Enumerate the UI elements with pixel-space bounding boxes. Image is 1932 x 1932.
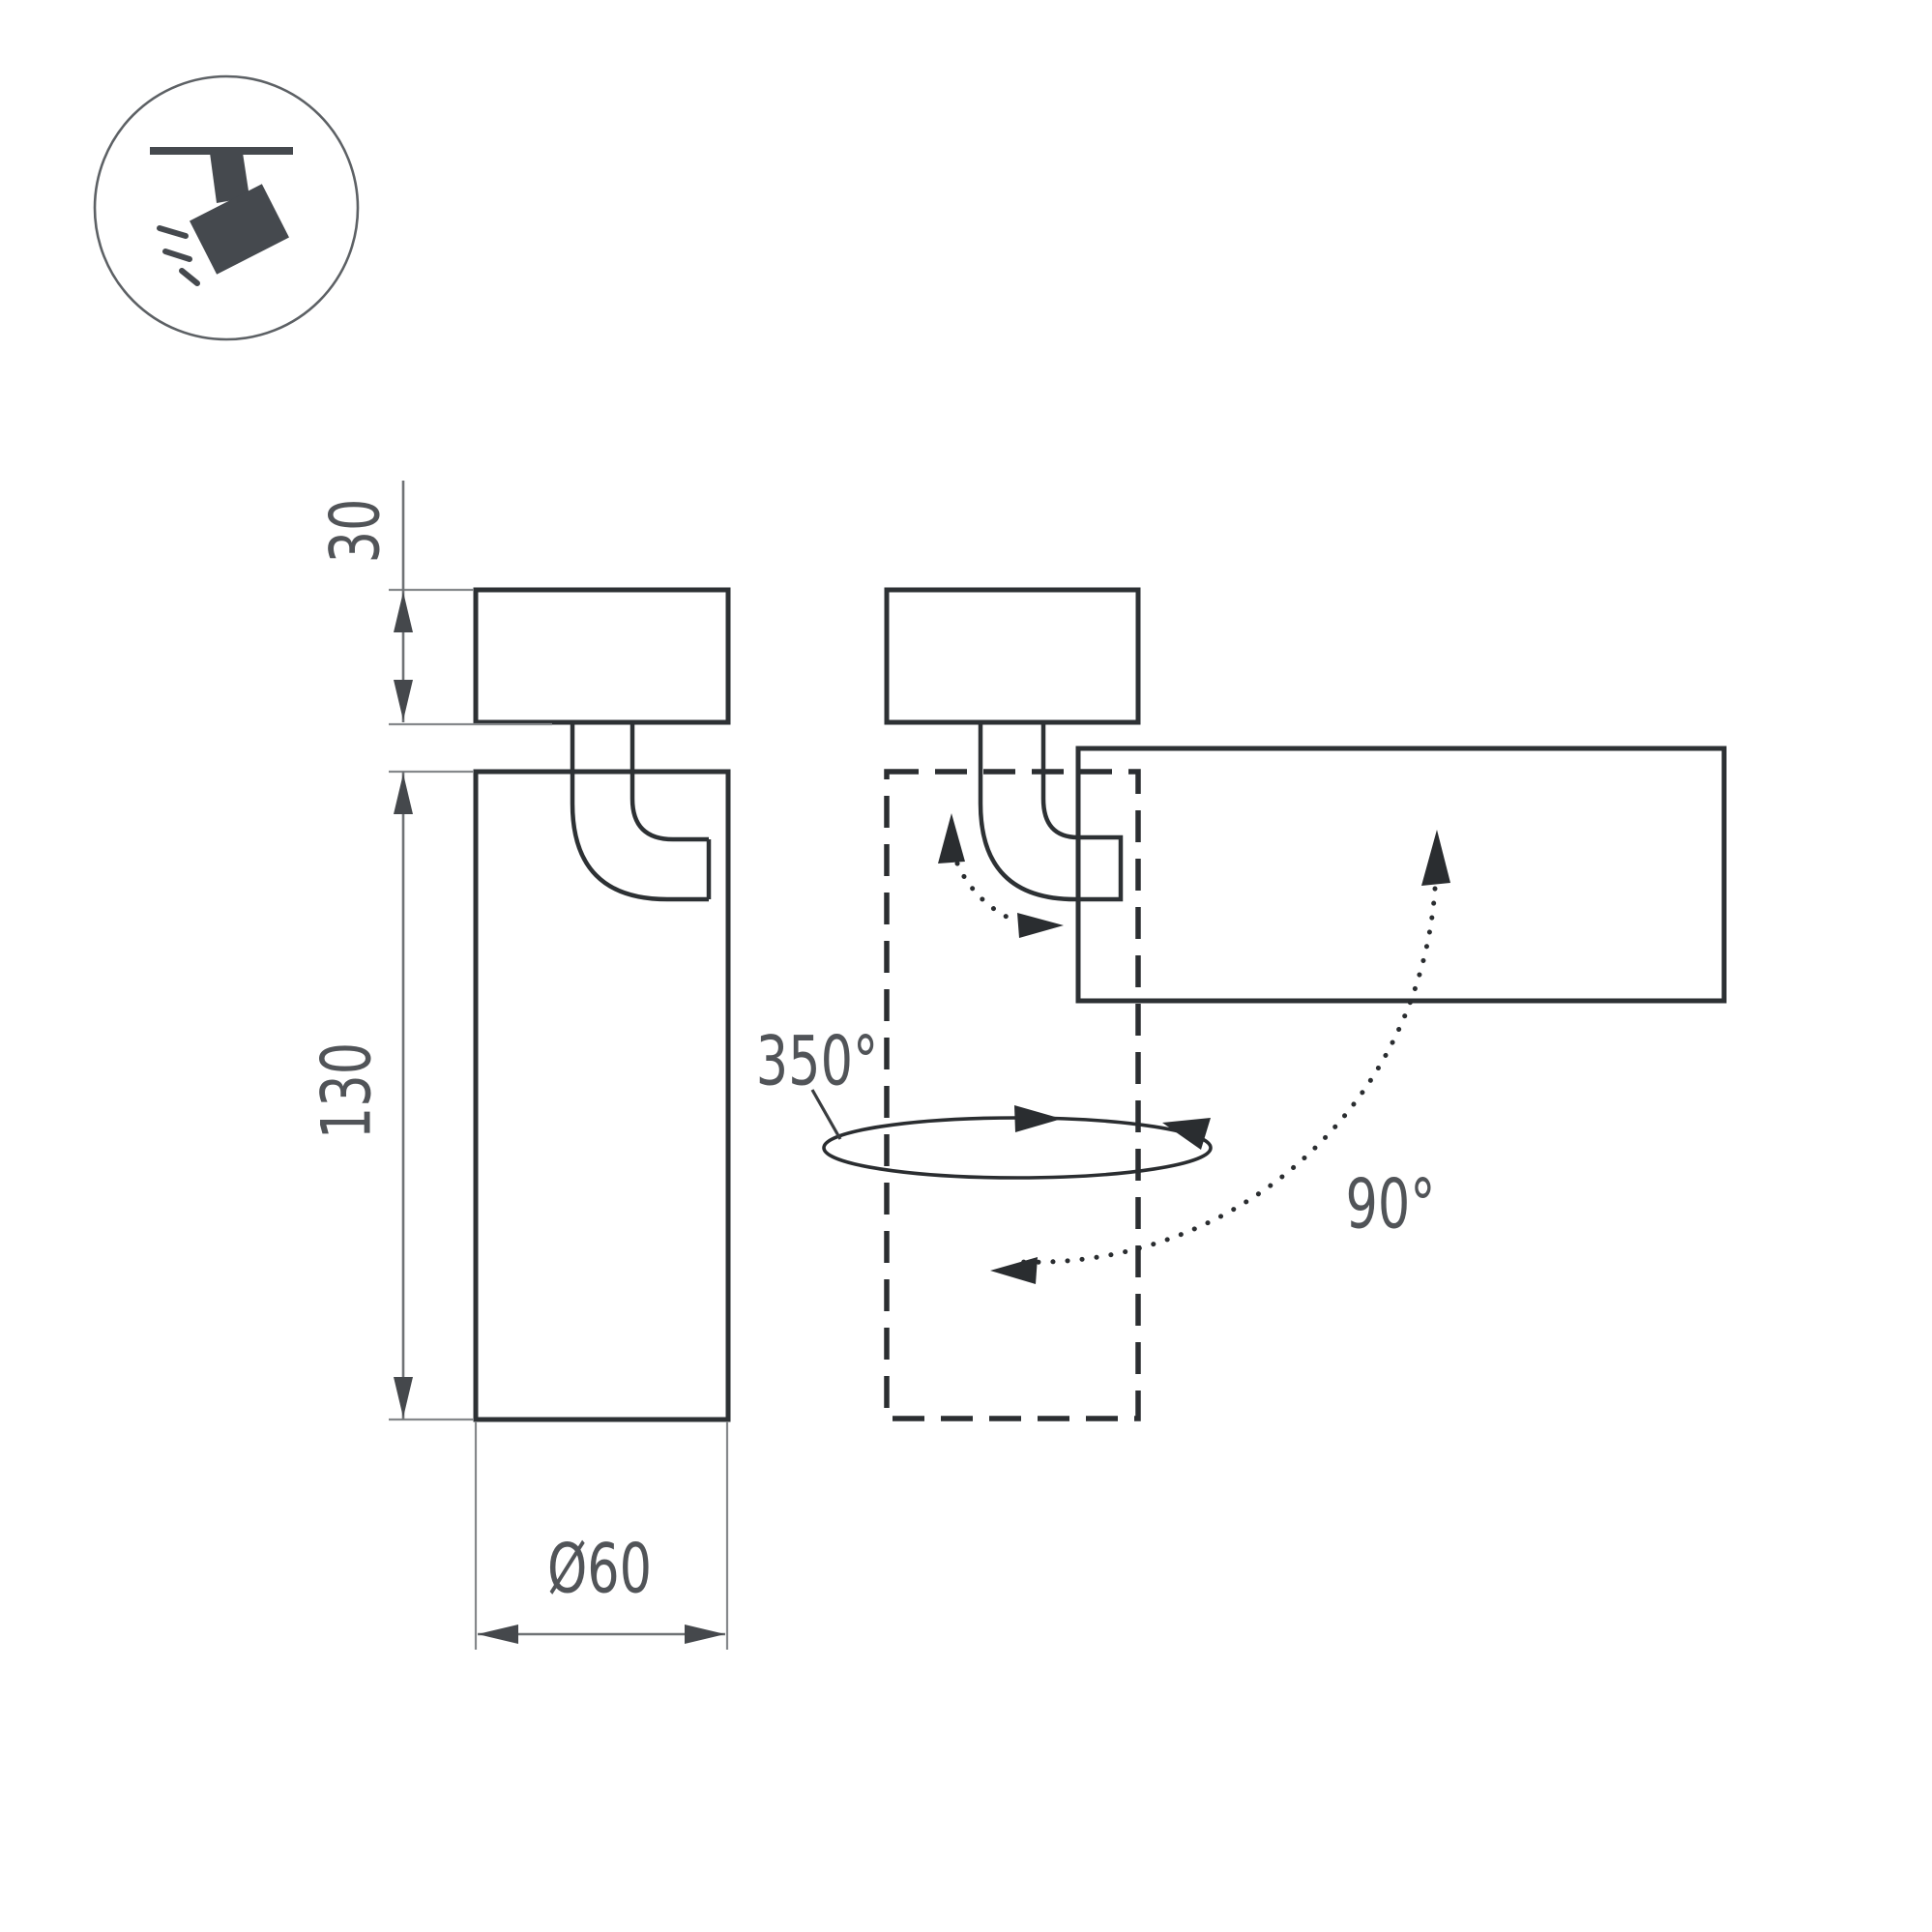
body-height-label: 130 [307, 1042, 386, 1139]
light-ray-icon [165, 251, 190, 259]
tilt-arrowhead-right-small [1017, 913, 1064, 938]
arrowhead-down [394, 680, 413, 720]
bracket-tilt-dotted-arc [957, 864, 1012, 920]
arrowhead-down [394, 1377, 413, 1418]
product-icon [95, 76, 358, 339]
lamp-body-outline [476, 772, 728, 1420]
tilt-arrowhead-up-large [1421, 830, 1450, 886]
swivel-angle-label: 350° [756, 1022, 878, 1100]
ceiling-cap-outline [887, 590, 1138, 722]
arrowhead-up [394, 774, 413, 814]
arrowhead-left [478, 1625, 518, 1644]
tilt-angle-label: 90° [1345, 1165, 1435, 1244]
dimension-diameter: Ø60 [476, 1421, 727, 1650]
diameter-label: Ø60 [547, 1530, 652, 1608]
icon-light-rays [160, 228, 197, 283]
bracket-mount-tab [1078, 837, 1121, 899]
arrowhead-right [685, 1625, 725, 1644]
tilt-arrowhead-up-small [938, 813, 965, 864]
dimension-cap-height: 30 [316, 481, 552, 724]
swivel-arrowhead-ccw [1162, 1118, 1211, 1150]
front-view-fixture [476, 590, 728, 1420]
bracket-elbow-inner [1043, 724, 1078, 837]
ceiling-cap-outline [476, 590, 728, 722]
tilt-arrowhead-left-large [990, 1257, 1038, 1284]
bracket-elbow-inner [632, 724, 709, 839]
cap-height-label: 30 [316, 499, 395, 564]
rotated-view-fixture [887, 590, 1724, 1419]
arrowhead-up [394, 592, 413, 632]
light-ray-icon [160, 228, 186, 236]
swivel-annotation: 350° [756, 1022, 1211, 1178]
icon-lamp-head [190, 184, 289, 274]
light-ray-icon [182, 271, 197, 283]
bracket-elbow-outer [572, 724, 709, 899]
spotlight-dimension-drawing: 30 130 Ø60 350° [0, 0, 1932, 1932]
technical-drawing-page: 30 130 Ø60 350° [0, 0, 1932, 1932]
body-ghost-dashed-outline [887, 772, 1138, 1419]
swivel-arrowhead-cw [1014, 1105, 1062, 1132]
tilted-lamp-body-outline [1078, 748, 1724, 1001]
dimension-body-height: 130 [307, 772, 474, 1420]
bracket-elbow-outer [981, 724, 1078, 899]
